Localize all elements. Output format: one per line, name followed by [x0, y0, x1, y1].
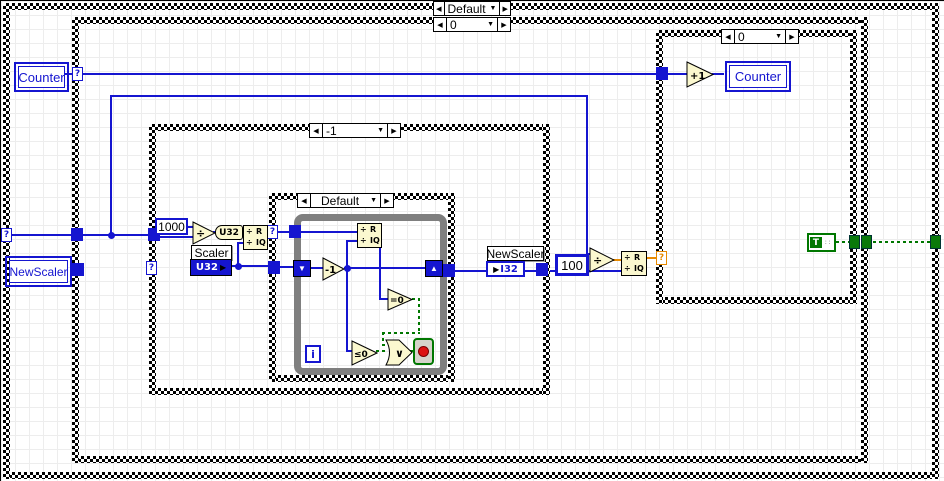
scaler-local-label[interactable]: Scaler: [191, 245, 232, 260]
wire-input[interactable]: [159, 236, 195, 238]
scaler-local-name: Scaler: [194, 246, 228, 260]
scaler-local-variable[interactable]: U32 ▶: [190, 259, 232, 276]
wire-input[interactable]: [83, 234, 149, 236]
tunnel[interactable]: [268, 261, 280, 274]
iteration-terminal[interactable]: i: [305, 345, 321, 363]
tunnel-bool[interactable]: [930, 235, 941, 249]
tunnel-bool[interactable]: [861, 235, 872, 249]
svg-text:+1: +1: [690, 71, 705, 82]
chevron-down-icon[interactable]: ▼: [377, 127, 384, 134]
counter-indicator-terminal[interactable]: Counter: [729, 65, 787, 88]
read-arrow-icon: ▶: [220, 263, 226, 272]
wire-junction[interactable]: [108, 232, 115, 239]
scaler-local-type: U32: [196, 262, 218, 273]
counter-control-label: Counter: [18, 70, 64, 85]
case-prev-button[interactable]: ◀: [298, 194, 311, 207]
constant-100[interactable]: 100: [555, 254, 589, 276]
quotient-remainder-function[interactable]: ÷R ÷IQ: [357, 223, 382, 248]
tunnel-bool[interactable]: [849, 235, 860, 249]
constant-100-value: 100: [561, 258, 583, 273]
wire-shift-init[interactable]: [278, 266, 294, 268]
counter-indicator-label: Counter: [735, 69, 781, 84]
case-selector-loop[interactable]: ◀ Default▼ ▶: [297, 193, 394, 208]
tunnel-unwired[interactable]: ?: [146, 261, 157, 275]
stop-icon: [418, 346, 429, 357]
shift-register-right[interactable]: ▲: [425, 260, 443, 277]
newscaler-local-type: I32: [500, 264, 518, 275]
svg-text:∨: ∨: [395, 347, 404, 360]
svg-text:÷: ÷: [196, 227, 205, 240]
quotient-remainder-function[interactable]: ÷R ÷IQ: [243, 225, 268, 250]
wire-scaler[interactable]: [239, 265, 269, 267]
true-constant[interactable]: T ::: [807, 233, 836, 252]
newscaler-local-label[interactable]: NewScaler: [487, 246, 544, 261]
case-selector-divisor[interactable]: ◀ -1▼ ▶: [309, 123, 401, 138]
boolean-dots-icon: ::: [824, 239, 831, 246]
loop-tunnel[interactable]: [289, 225, 301, 238]
newscaler-local-name: NewScaler: [486, 247, 544, 261]
wire-counter[interactable]: [83, 73, 656, 75]
case-prev-button[interactable]: ◀: [434, 18, 447, 31]
case-next-button[interactable]: ▶: [499, 2, 510, 15]
counter-control-terminal[interactable]: Counter: [18, 66, 65, 88]
svg-text:=0: =0: [390, 296, 404, 306]
wire-bool-true[interactable]: [836, 241, 849, 243]
labview-block-diagram: ◀ Default▼ ▶ ◀ 0▼ ▶ ◀ -1▼ ▶ ◀ Default▼ ▶…: [0, 0, 944, 481]
tunnel-unwired[interactable]: ?: [1, 228, 12, 242]
tunnel[interactable]: [656, 67, 668, 80]
case-prev-button[interactable]: ◀: [434, 2, 445, 15]
tunnel[interactable]: [443, 264, 455, 277]
case-selector-outer[interactable]: ◀ Default▼ ▶: [433, 1, 511, 16]
increment-function[interactable]: +1: [686, 61, 714, 88]
shift-up-icon: ▲: [430, 264, 438, 273]
svg-text:-1: -1: [325, 265, 336, 276]
wire-input[interactable]: [11, 234, 72, 236]
case-selector-label: 0: [738, 30, 771, 44]
chevron-down-icon[interactable]: ▼: [370, 197, 377, 204]
lte-zero-function[interactable]: ≤0: [351, 340, 378, 366]
tunnel-unwired[interactable]: ?: [267, 225, 278, 239]
case-selector-label: Default: [314, 194, 366, 208]
chevron-down-icon[interactable]: ▼: [775, 33, 782, 40]
wire-input-branch[interactable]: [110, 95, 588, 97]
tunnel-unwired[interactable]: ?: [72, 67, 83, 81]
tunnel[interactable]: [72, 263, 84, 276]
case-next-button[interactable]: ▶: [387, 124, 400, 137]
quotient-remainder-function[interactable]: ÷R ÷IQ: [621, 251, 647, 276]
case-selector-label: Default: [448, 2, 486, 16]
tunnel[interactable]: [71, 228, 83, 241]
iteration-label: i: [311, 348, 315, 361]
stop-condition-terminal[interactable]: [413, 338, 434, 365]
case-prev-button[interactable]: ◀: [722, 30, 735, 43]
true-constant-value: T: [810, 237, 822, 248]
shift-register-left[interactable]: ▼: [293, 260, 311, 277]
newscaler-local-variable[interactable]: ▶ I32: [486, 261, 525, 277]
chevron-down-icon[interactable]: ▼: [490, 5, 497, 12]
shift-down-icon: ▼: [298, 264, 306, 273]
newscaler-control-label: NewScaler: [9, 265, 67, 279]
case-selector-label: 0: [450, 18, 483, 32]
tunnel-unwired-dbl[interactable]: ?: [656, 251, 667, 265]
wire-junction[interactable]: [235, 263, 242, 270]
to-u32-conversion[interactable]: U32: [215, 225, 243, 240]
equal-zero-function[interactable]: =0: [387, 288, 413, 311]
case-next-button[interactable]: ▶: [497, 18, 510, 31]
or-function[interactable]: ∨: [385, 339, 413, 366]
decrement-function[interactable]: -1: [322, 257, 345, 281]
divide-function[interactable]: ÷: [192, 221, 216, 245]
wire-input-branch[interactable]: [110, 95, 112, 236]
divide-function[interactable]: ÷: [589, 247, 615, 273]
case-selector-label: -1: [326, 124, 373, 138]
to-u32-label: U32: [219, 228, 239, 238]
chevron-down-icon[interactable]: ▼: [487, 21, 494, 28]
svg-text:≤0: ≤0: [354, 350, 368, 360]
write-arrow-icon: ▶: [493, 265, 499, 274]
wire-counter[interactable]: [668, 73, 687, 75]
case-prev-button[interactable]: ◀: [310, 124, 323, 137]
case-next-button[interactable]: ▶: [380, 194, 393, 207]
constant-1000[interactable]: 1000: [155, 218, 188, 235]
newscaler-control-terminal[interactable]: NewScaler: [9, 260, 68, 283]
wire-input-branch[interactable]: [586, 95, 588, 255]
case-selector-scaler[interactable]: ◀ 0▼ ▶: [433, 17, 511, 32]
constant-1000-value: 1000: [158, 220, 185, 234]
case-next-button[interactable]: ▶: [785, 30, 798, 43]
case-selector-counter[interactable]: ◀ 0▼ ▶: [721, 29, 799, 44]
tunnel[interactable]: [536, 263, 548, 276]
wire-bool-true[interactable]: [873, 241, 931, 243]
svg-text:÷: ÷: [593, 254, 602, 267]
